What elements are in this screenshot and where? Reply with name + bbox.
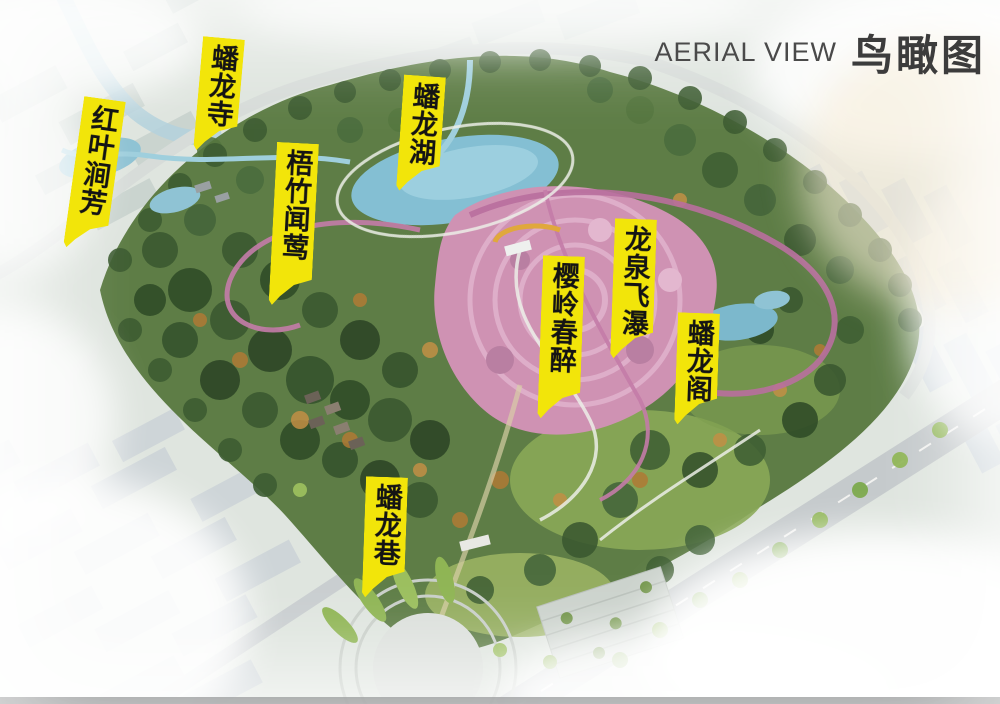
aerial-view-slide: AERIAL VIEW 鸟瞰图 红叶涧芳 蟠龙寺 梧竹闻莺 蟠龙湖 龙泉飞瀑 樱… — [0, 0, 1000, 704]
title-chinese: 鸟瞰图 — [851, 22, 986, 83]
bottom-edge — [0, 697, 1000, 704]
title-english: AERIAL VIEW — [654, 37, 837, 68]
page-title: AERIAL VIEW 鸟瞰图 — [654, 22, 986, 83]
aerial-rendering — [0, 0, 1000, 704]
